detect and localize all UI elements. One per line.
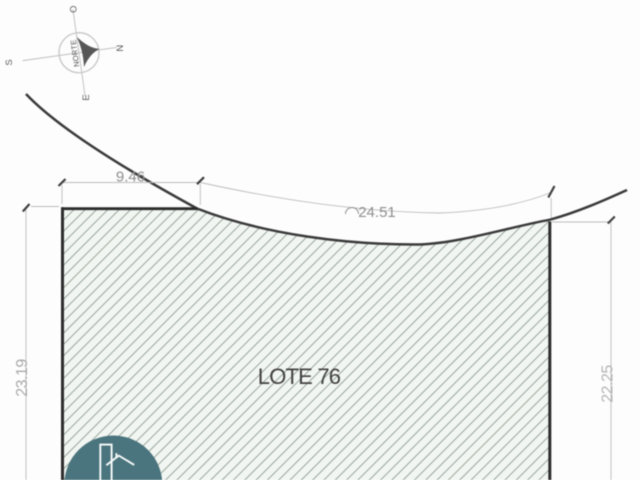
svg-text:23.19: 23.19 (14, 359, 31, 397)
svg-text:S: S (4, 59, 15, 65)
svg-text:E: E (81, 94, 92, 100)
svg-text:N: N (115, 45, 126, 52)
svg-text:O: O (68, 6, 79, 13)
svg-text:24.51: 24.51 (358, 204, 396, 221)
svg-text:LOTE 76: LOTE 76 (258, 364, 341, 389)
svg-text:22.25: 22.25 (599, 365, 616, 403)
svg-text:9.46: 9.46 (116, 169, 145, 186)
